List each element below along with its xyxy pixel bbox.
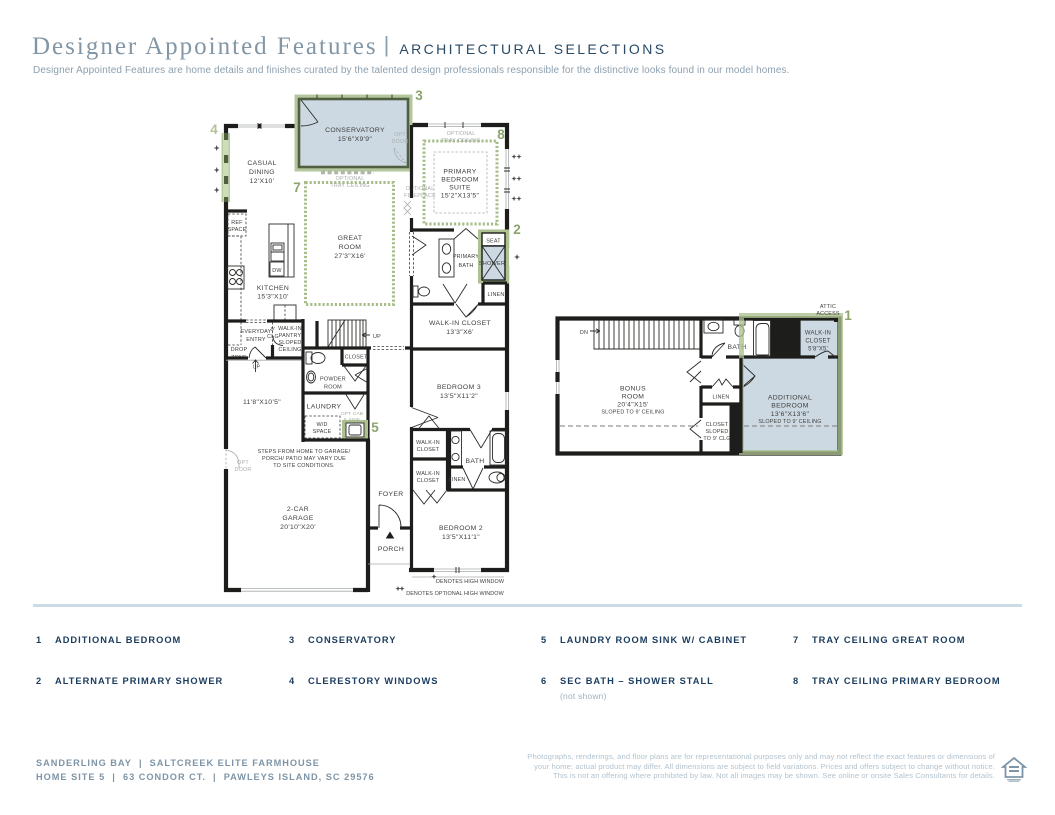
svg-text:13'6"X13'6": 13'6"X13'6"	[771, 411, 810, 418]
svg-text:TRAY CEILING: TRAY CEILING	[330, 183, 369, 189]
svg-text:ROOM: ROOM	[339, 244, 362, 251]
svg-text:PORCH/ PATIO MAY VARY DUE: PORCH/ PATIO MAY VARY DUE	[262, 456, 346, 462]
svg-text:WALK-IN CLOSET: WALK-IN CLOSET	[429, 320, 491, 327]
svg-text:20'10"X20': 20'10"X20'	[280, 524, 316, 531]
svg-text:SEAT: SEAT	[486, 239, 501, 245]
svg-text:FOYER: FOYER	[378, 491, 403, 498]
svg-text:4: 4	[210, 122, 218, 137]
svg-text:2: 2	[513, 222, 521, 237]
svg-text:KITCHEN: KITCHEN	[257, 285, 289, 292]
svg-text:LINEN: LINEN	[713, 395, 730, 401]
svg-text:CLOSET: CLOSET	[417, 447, 440, 453]
svg-text:BEDROOM: BEDROOM	[441, 177, 479, 184]
svg-text:ROOM: ROOM	[324, 385, 342, 391]
svg-text:DINING: DINING	[249, 169, 275, 176]
svg-text:CASUAL: CASUAL	[247, 160, 276, 167]
svg-text:CEILING: CEILING	[279, 347, 302, 353]
svg-text:TO SITE CONDITIONS.: TO SITE CONDITIONS.	[273, 463, 335, 469]
svg-text:BONUS: BONUS	[620, 386, 646, 393]
svg-text:SPACE: SPACE	[228, 227, 247, 233]
svg-text:PRIMARY: PRIMARY	[443, 169, 476, 176]
svg-text:OPT: OPT	[394, 132, 406, 138]
svg-text:WALK-IN: WALK-IN	[278, 326, 302, 332]
svg-text:STEPS FROM HOME TO GARAGE/: STEPS FROM HOME TO GARAGE/	[258, 449, 351, 455]
svg-text:BEDROOM 2: BEDROOM 2	[439, 525, 483, 532]
svg-text:ACCESS: ACCESS	[816, 311, 840, 317]
svg-text:11'8"X10'5": 11'8"X10'5"	[243, 399, 281, 406]
svg-text:DENOTES HIGH WINDOW: DENOTES HIGH WINDOW	[436, 579, 505, 585]
svg-text:UP: UP	[253, 365, 261, 371]
svg-text:8: 8	[497, 127, 505, 142]
svg-text:CLOSET: CLOSET	[706, 422, 729, 428]
svg-text:27'3"X16': 27'3"X16'	[334, 253, 366, 260]
svg-text:DOOR: DOOR	[235, 467, 252, 473]
svg-text:LAUNDRY: LAUNDRY	[307, 404, 342, 411]
svg-text:OPT: OPT	[237, 460, 249, 466]
svg-text:CLOSET: CLOSET	[805, 339, 830, 345]
svg-text:SUITE: SUITE	[449, 185, 471, 192]
svg-text:UP: UP	[373, 334, 381, 340]
svg-text:2-CAR: 2-CAR	[287, 506, 309, 513]
svg-text:CLOSET: CLOSET	[345, 355, 368, 361]
svg-text:PORCH: PORCH	[378, 546, 404, 553]
svg-text:LINEN: LINEN	[449, 477, 466, 483]
svg-text:13'3"X6': 13'3"X6'	[446, 329, 473, 336]
svg-text:15'3"X10': 15'3"X10'	[257, 294, 289, 301]
svg-text:TO 9' CLG: TO 9' CLG	[703, 436, 730, 442]
svg-text:SHOWER: SHOWER	[479, 261, 505, 267]
svg-text:FIREPLACE: FIREPLACE	[404, 193, 436, 199]
svg-text:SLOPED TO 9' CEILING: SLOPED TO 9' CEILING	[601, 410, 664, 416]
svg-text:W/D: W/D	[316, 422, 327, 428]
svg-text:PANTRY: PANTRY	[279, 333, 302, 339]
svg-text:POWDER: POWDER	[320, 377, 346, 383]
svg-text:DN: DN	[580, 330, 588, 336]
svg-text:15'6"X9'9": 15'6"X9'9"	[338, 136, 373, 143]
svg-text:SLOPED: SLOPED	[705, 429, 728, 435]
svg-text:3: 3	[415, 88, 423, 103]
svg-text:ROOM: ROOM	[622, 394, 645, 401]
svg-text:WALK-IN: WALK-IN	[805, 331, 831, 337]
svg-text:SLOPED TO 9' CEILING: SLOPED TO 9' CEILING	[758, 419, 821, 425]
svg-text:GREAT: GREAT	[338, 235, 363, 242]
svg-text:& SINK: & SINK	[344, 417, 362, 423]
svg-text:BATH: BATH	[458, 263, 473, 269]
svg-text:SPACE: SPACE	[313, 429, 332, 435]
svg-text:DROP: DROP	[231, 347, 248, 353]
svg-text:12'X10': 12'X10'	[250, 178, 275, 185]
svg-text:9': 9'	[271, 327, 275, 333]
svg-text:ENTRY: ENTRY	[246, 337, 266, 343]
svg-text:OPTIONAL: OPTIONAL	[447, 131, 476, 137]
svg-text:LINEN: LINEN	[488, 292, 505, 298]
svg-text:13'5"X11'2": 13'5"X11'2"	[440, 393, 478, 400]
svg-text:OPTIONAL: OPTIONAL	[336, 176, 365, 182]
svg-text:20'4"X15': 20'4"X15'	[617, 402, 649, 409]
svg-text:BEDROOM: BEDROOM	[771, 403, 809, 410]
svg-text:WALK-IN: WALK-IN	[416, 471, 440, 477]
svg-text:15'2"X13'5": 15'2"X13'5"	[441, 193, 480, 200]
svg-text:WALK-IN: WALK-IN	[416, 440, 440, 446]
svg-text:5: 5	[371, 420, 379, 435]
svg-text:OPTIONAL: OPTIONAL	[406, 186, 435, 192]
svg-text:13'5"X11'1": 13'5"X11'1"	[442, 534, 480, 541]
svg-text:7: 7	[293, 180, 301, 195]
svg-text:1: 1	[844, 308, 852, 323]
svg-text:PRIMARY: PRIMARY	[453, 254, 479, 260]
svg-text:ADDITIONAL: ADDITIONAL	[768, 395, 812, 402]
svg-text:BEDROOM 3: BEDROOM 3	[437, 384, 481, 391]
svg-text:TRAY CEILING: TRAY CEILING	[441, 138, 480, 144]
svg-text:REF: REF	[231, 220, 243, 226]
svg-text:GARAGE: GARAGE	[282, 515, 313, 522]
svg-text:DENOTES OPTIONAL HIGH WINDOW: DENOTES OPTIONAL HIGH WINDOW	[406, 591, 504, 597]
svg-text:CONSERVATORY: CONSERVATORY	[325, 127, 385, 134]
svg-text:DW: DW	[272, 268, 282, 274]
svg-text:BATH: BATH	[465, 458, 484, 465]
svg-text:OPT CAB: OPT CAB	[341, 411, 363, 417]
svg-text:CLOSET: CLOSET	[417, 478, 440, 484]
svg-text:ATTIC: ATTIC	[820, 304, 836, 310]
svg-text:DOOR: DOOR	[392, 139, 409, 145]
